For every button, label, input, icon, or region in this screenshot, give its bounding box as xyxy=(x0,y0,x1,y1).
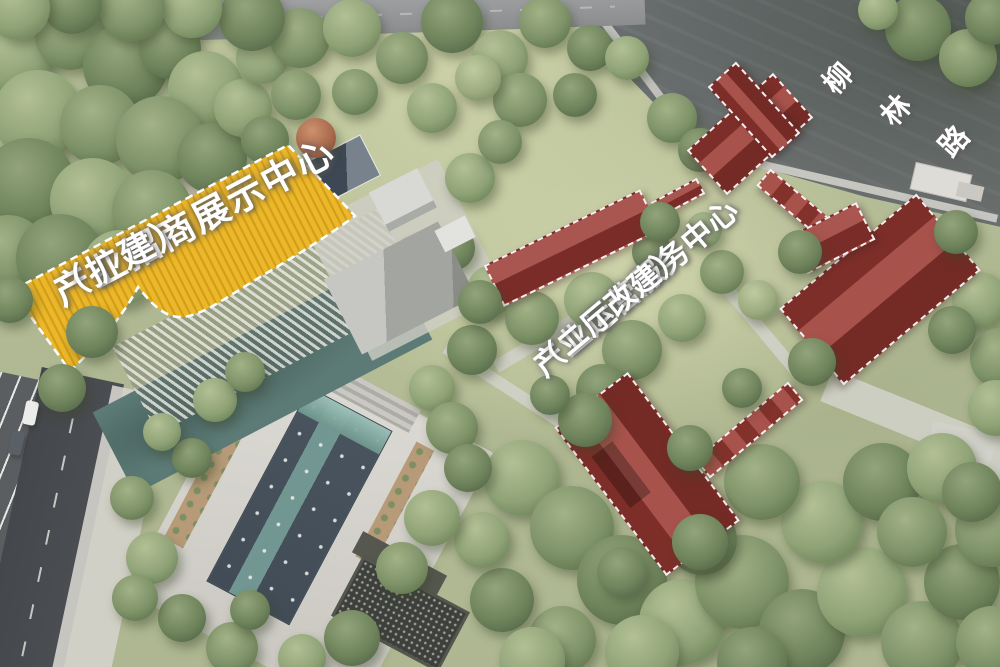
tree xyxy=(332,69,378,115)
tree xyxy=(877,497,947,567)
tree xyxy=(404,490,460,546)
tree xyxy=(202,177,258,233)
tree xyxy=(296,118,336,158)
tree xyxy=(110,476,154,520)
tree xyxy=(605,36,649,80)
tree xyxy=(530,375,570,415)
tree xyxy=(700,250,744,294)
tree xyxy=(225,352,265,392)
tree xyxy=(640,202,680,242)
tree xyxy=(942,462,1000,522)
tree xyxy=(564,272,620,328)
tree xyxy=(553,73,597,117)
tree xyxy=(376,542,428,594)
tree xyxy=(738,280,778,320)
tree xyxy=(66,306,118,358)
tree xyxy=(686,212,722,248)
tree xyxy=(323,0,381,57)
tree xyxy=(444,444,492,492)
tree xyxy=(778,230,822,274)
tree xyxy=(658,294,706,342)
tree xyxy=(722,368,762,408)
tree xyxy=(478,120,522,164)
tree xyxy=(672,514,728,570)
tree xyxy=(38,364,86,412)
tree xyxy=(158,594,206,642)
tree xyxy=(458,280,502,324)
tree xyxy=(230,590,270,630)
tree xyxy=(241,116,289,164)
tree xyxy=(934,210,978,254)
tree xyxy=(493,73,547,127)
tree xyxy=(82,230,158,306)
tree xyxy=(112,575,158,621)
tree xyxy=(324,610,380,666)
tree xyxy=(143,413,181,451)
tree xyxy=(447,325,497,375)
tree xyxy=(597,547,647,597)
tree xyxy=(788,338,836,386)
tree xyxy=(519,0,571,48)
tree xyxy=(454,512,510,568)
tree xyxy=(667,425,713,471)
tree xyxy=(271,70,321,120)
tree xyxy=(172,438,212,478)
aerial-site-plan-rendering: 产业招商展示中心 （扩建） 产业运营服务中心 （二厅改建） 柳 林 路 xyxy=(0,0,1000,667)
tree xyxy=(928,306,976,354)
tree xyxy=(407,83,457,133)
tree xyxy=(148,225,208,285)
tree xyxy=(376,32,428,84)
tree xyxy=(455,55,501,101)
tree xyxy=(470,568,534,632)
